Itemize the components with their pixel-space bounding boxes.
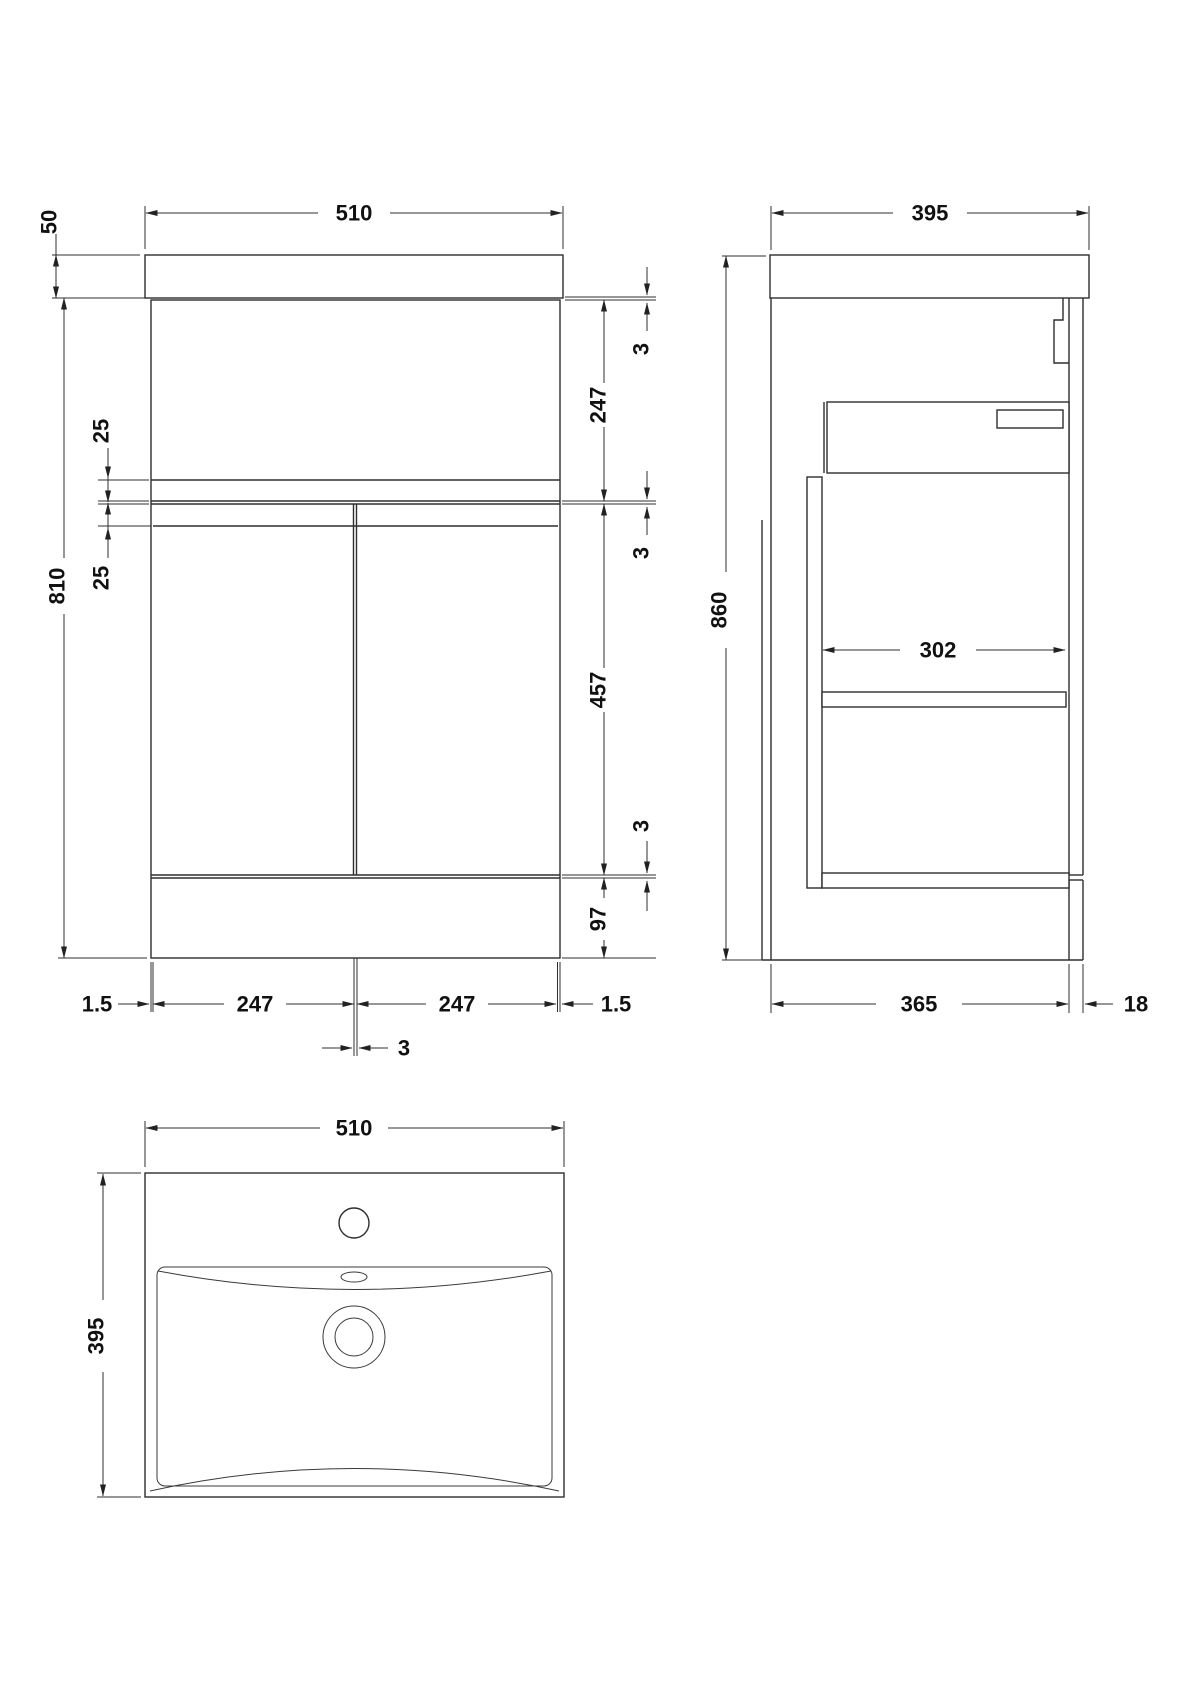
side-depth-label: 395 [912,201,949,226]
front-height-label: 810 [45,568,70,605]
front-door-gap-label: 3 [398,1036,410,1061]
front-countertop [145,255,563,298]
front-width-label: 510 [336,201,373,226]
side-inner-depth-label: 302 [920,638,957,663]
side-bottom-panel [822,873,1069,888]
plan-width-label: 510 [336,1116,373,1141]
front-elevation: 510 50 810 25 2 [37,201,657,1061]
front-door-left-label: 247 [237,992,274,1017]
front-height-dim [58,298,147,958]
front-rail-bottom-label: 25 [89,566,114,590]
front-cabinet-body [151,300,560,958]
plan-basin-outline [145,1173,564,1497]
side-countertop [770,255,1089,298]
front-rail-top-label: 25 [89,419,114,443]
front-gap-top-label: 3 [629,343,654,355]
front-counter-height-label: 50 [37,210,62,234]
front-counter-height-dim [52,234,146,298]
basin-plan: 510 395 [84,1116,565,1498]
side-fixing-bracket [1054,298,1069,363]
drawing-canvas: 510 50 810 25 2 [0,0,1200,1698]
front-edge-left-label: 1.5 [82,992,113,1017]
plan-depth-label: 395 [84,1318,109,1355]
front-door-right-label: 247 [439,992,476,1017]
front-gap-mid-label: 3 [629,547,654,559]
side-height-label: 860 [707,592,732,629]
side-shelf [822,692,1066,707]
front-rail-top-dim [98,448,149,533]
front-door-height-label: 457 [586,672,611,709]
side-panel-thickness-label: 18 [1124,992,1148,1017]
side-bottom-dims [771,964,1113,1013]
front-gap-low-label: 3 [629,820,654,832]
side-panel-board [807,477,822,888]
front-panel-height-label: 247 [586,387,611,424]
front-plinth-label: 97 [586,907,611,931]
side-elevation: 395 860 302 365 18 [707,201,1149,1017]
technical-drawing: 510 50 810 25 2 [0,0,1200,1698]
front-bottom-extensions [151,958,560,1056]
front-rail-bottom-dim [98,474,151,558]
front-edge-right-label: 1.5 [601,992,632,1017]
side-drawer-handle [997,410,1063,428]
side-body-depth-label: 365 [901,992,938,1017]
